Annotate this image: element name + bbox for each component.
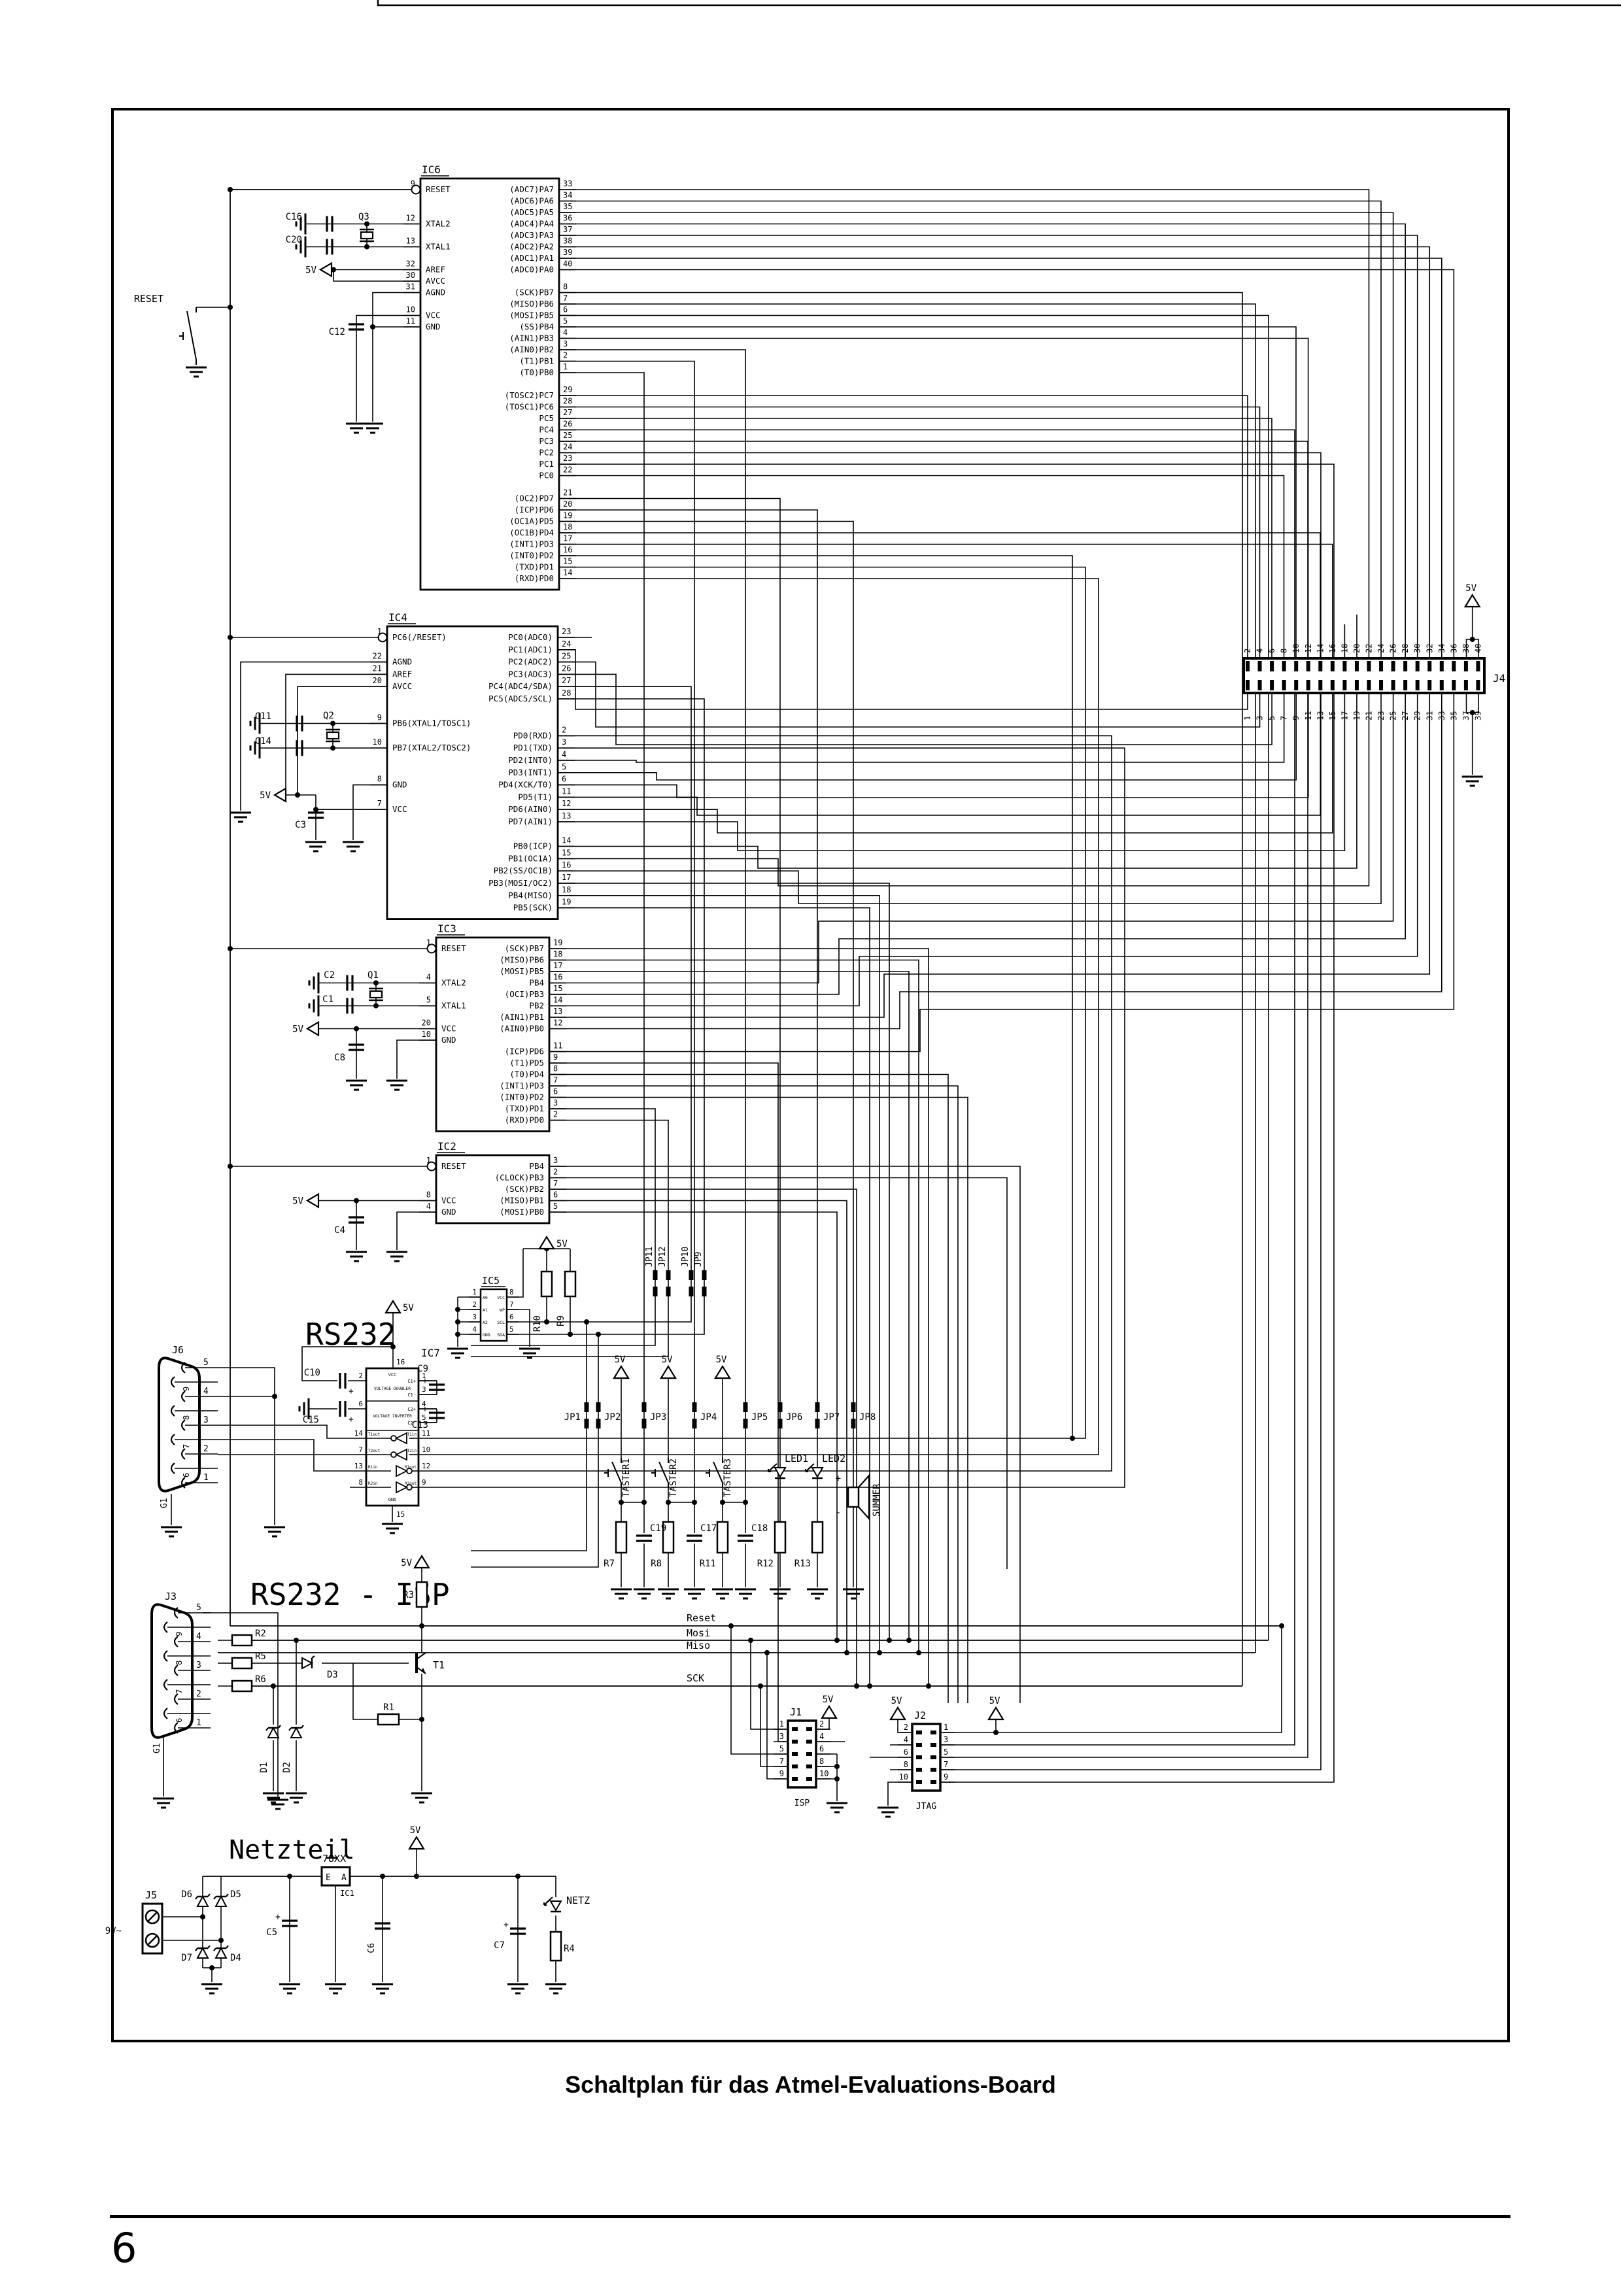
svg-text:+: +	[422, 1404, 428, 1414]
svg-text:(SS)PB4: (SS)PB4	[519, 322, 554, 331]
svg-text:23: 23	[562, 627, 571, 636]
svg-text:9: 9	[411, 179, 415, 188]
svg-text:17: 17	[562, 873, 571, 882]
svg-text:17: 17	[553, 961, 562, 970]
svg-text:31: 31	[406, 282, 415, 292]
svg-text:5V: 5V	[615, 1355, 626, 1365]
svg-text:20: 20	[1352, 644, 1361, 653]
svg-text:AREF: AREF	[392, 669, 412, 679]
svg-text:G1: G1	[160, 1498, 169, 1508]
svg-text:38: 38	[563, 237, 572, 246]
svg-text:9V~: 9V~	[105, 1926, 122, 1936]
svg-text:31: 31	[1425, 711, 1434, 720]
svg-text:JP8: JP8	[859, 1412, 876, 1423]
svg-text:GND: GND	[388, 1497, 397, 1502]
svg-text:XTAL1: XTAL1	[426, 242, 451, 252]
svg-text:18: 18	[562, 885, 571, 894]
svg-text:RESET: RESET	[441, 1161, 466, 1171]
svg-text:C17: C17	[700, 1523, 717, 1534]
svg-text:15: 15	[563, 557, 572, 566]
svg-text:16: 16	[563, 545, 572, 554]
svg-text:C1-: C1-	[407, 1393, 416, 1398]
svg-text:24: 24	[562, 639, 571, 649]
svg-text:R6: R6	[255, 1674, 266, 1685]
svg-text:30: 30	[406, 271, 415, 280]
svg-text:21: 21	[1365, 711, 1374, 720]
svg-text:+: +	[349, 1415, 354, 1425]
svg-text:7: 7	[509, 1300, 514, 1309]
svg-text:IC7: IC7	[421, 1347, 440, 1359]
svg-text:39: 39	[563, 248, 572, 257]
svg-text:4: 4	[562, 750, 566, 759]
svg-text:C18: C18	[751, 1523, 768, 1534]
svg-text:4: 4	[426, 973, 431, 982]
svg-text:5V: 5V	[891, 1696, 902, 1706]
svg-text:GND: GND	[426, 322, 441, 331]
svg-text:J4: J4	[1493, 672, 1505, 684]
svg-text:18: 18	[553, 950, 562, 959]
svg-text:35: 35	[563, 202, 572, 211]
svg-text:R3: R3	[403, 1590, 414, 1600]
svg-text:(SCK)PB7: (SCK)PB7	[515, 288, 554, 297]
svg-text:3: 3	[1255, 716, 1265, 720]
svg-text:IC2: IC2	[437, 1140, 456, 1153]
svg-text:30: 30	[1413, 644, 1422, 653]
svg-text:16: 16	[553, 973, 562, 982]
j3-connector: J3594837261G1	[152, 1591, 211, 1753]
svg-text:GND: GND	[441, 1207, 456, 1217]
svg-text:12: 12	[562, 799, 571, 808]
svg-text:J1: J1	[790, 1706, 802, 1718]
svg-text:PD6(AIN0): PD6(AIN0)	[508, 804, 553, 814]
svg-text:(ICP)PD6: (ICP)PD6	[515, 505, 554, 515]
svg-text:J5: J5	[145, 1889, 157, 1901]
svg-text:37: 37	[1461, 711, 1471, 720]
ic5-block: IC51A02A13A24GND8VCC7WP6SCL5SDA	[469, 1275, 519, 1341]
svg-text:IC1: IC1	[340, 1889, 354, 1898]
svg-text:PB5(SCK): PB5(SCK)	[513, 903, 553, 913]
svg-text:PD2(INT0): PD2(INT0)	[508, 755, 553, 765]
svg-text:GND: GND	[441, 1035, 456, 1045]
svg-text:AGND: AGND	[392, 657, 412, 667]
svg-text:(ADC7)PA7: (ADC7)PA7	[509, 184, 554, 194]
svg-text:SCK: SCK	[687, 1672, 704, 1684]
svg-text:40: 40	[1473, 644, 1482, 653]
svg-text:C6: C6	[367, 1943, 377, 1953]
svg-text:10: 10	[819, 1769, 828, 1778]
svg-text:D7: D7	[181, 1953, 192, 1963]
svg-text:1: 1	[563, 362, 568, 371]
svg-text:A2: A2	[483, 1320, 488, 1325]
svg-text:C9: C9	[417, 1364, 428, 1374]
svg-text:15: 15	[1328, 711, 1337, 720]
svg-text:14: 14	[354, 1429, 364, 1438]
svg-text:23: 23	[1376, 711, 1386, 720]
svg-text:PB4: PB4	[529, 978, 544, 988]
svg-text:1: 1	[426, 938, 431, 947]
svg-text:5: 5	[1267, 716, 1276, 720]
svg-text:1: 1	[779, 1719, 784, 1729]
svg-text:26: 26	[1389, 644, 1398, 653]
svg-text:17: 17	[1340, 711, 1349, 720]
svg-text:8: 8	[377, 775, 382, 784]
svg-text:AVCC: AVCC	[392, 681, 412, 691]
svg-text:6: 6	[1267, 649, 1276, 653]
svg-text:(TOSC1)PC6: (TOSC1)PC6	[505, 402, 554, 412]
svg-text:VCC: VCC	[388, 1372, 397, 1377]
svg-text:5V: 5V	[716, 1355, 727, 1365]
schematic-svg: IC69RESET12XTAL213XTAL132AREF30AVCC31AGN…	[0, 0, 1621, 2293]
svg-text:LED1: LED1	[785, 1453, 808, 1464]
svg-text:19: 19	[1352, 711, 1361, 720]
svg-text:PC5(ADC5/SCL): PC5(ADC5/SCL)	[488, 694, 553, 703]
svg-text:24: 24	[563, 443, 572, 452]
figure-caption: Schaltplan für das Atmel-Evaluations-Boa…	[0, 2071, 1621, 2099]
svg-text:Reset: Reset	[687, 1612, 716, 1624]
svg-text:2: 2	[553, 1168, 558, 1177]
svg-text:C2+: C2+	[407, 1407, 416, 1412]
svg-text:R1: R1	[383, 1702, 394, 1713]
j6-connector: J6594837261G1	[159, 1344, 218, 1508]
svg-text:PB2: PB2	[529, 1001, 544, 1011]
svg-text:PB7(XTAL2/TOSC2): PB7(XTAL2/TOSC2)	[392, 743, 471, 752]
svg-text:11: 11	[1304, 711, 1313, 720]
svg-text:PB4(MISO): PB4(MISO)	[508, 890, 553, 900]
svg-text:3: 3	[779, 1732, 784, 1741]
svg-text:PD1(TXD): PD1(TXD)	[513, 743, 553, 752]
svg-text:2: 2	[562, 725, 566, 734]
svg-text:(OC2)PD7: (OC2)PD7	[515, 494, 554, 503]
svg-text:C8: C8	[334, 1053, 345, 1063]
svg-text:1: 1	[944, 1723, 948, 1732]
svg-text:(AIN1)PB1: (AIN1)PB1	[500, 1012, 544, 1022]
svg-text:D1: D1	[259, 1762, 269, 1773]
svg-text:5V: 5V	[662, 1355, 673, 1365]
svg-text:JP6: JP6	[786, 1412, 802, 1423]
svg-text:7: 7	[1280, 716, 1289, 720]
svg-text:4: 4	[203, 1387, 209, 1396]
svg-text:34: 34	[1437, 644, 1446, 653]
svg-text:RESET: RESET	[134, 293, 163, 305]
svg-text:VCC: VCC	[497, 1295, 505, 1300]
svg-text:25: 25	[563, 431, 572, 440]
svg-text:12: 12	[422, 1462, 430, 1470]
svg-text:1: 1	[203, 1473, 209, 1483]
svg-text:7: 7	[358, 1445, 363, 1454]
svg-text:PB0(ICP): PB0(ICP)	[513, 841, 553, 851]
svg-text:5V: 5V	[410, 1825, 421, 1836]
schematic-canvas: IC69RESET12XTAL213XTAL132AREF30AVCC31AGN…	[0, 0, 1621, 2296]
svg-text:(RXD)PD0: (RXD)PD0	[505, 1115, 544, 1125]
svg-text:3: 3	[944, 1735, 948, 1744]
svg-text:T1: T1	[433, 1659, 445, 1671]
svg-text:(RXD)PD0: (RXD)PD0	[515, 573, 554, 583]
svg-text:5V: 5V	[292, 1024, 303, 1035]
svg-text:JP1: JP1	[564, 1412, 581, 1423]
svg-text:Q2: Q2	[323, 711, 334, 721]
svg-text:RESET: RESET	[426, 184, 451, 194]
svg-text:3: 3	[562, 737, 566, 747]
ic4-block: IC41PC6(/RESET)22AGND21AREF20AVCC9PB6(XT…	[370, 611, 575, 919]
svg-text:6: 6	[175, 1718, 184, 1723]
svg-text:JP9: JP9	[694, 1252, 704, 1267]
svg-text:21: 21	[563, 488, 572, 498]
svg-text:40: 40	[563, 260, 572, 269]
svg-text:PD0(RXD): PD0(RXD)	[513, 730, 553, 740]
svg-text:(ADC0)PA0: (ADC0)PA0	[509, 265, 554, 275]
svg-text:JP2: JP2	[604, 1412, 621, 1423]
svg-text:AGND: AGND	[426, 288, 445, 297]
svg-text:VCC: VCC	[441, 1196, 456, 1206]
svg-text:9: 9	[175, 1632, 184, 1636]
svg-text:ISP: ISP	[794, 1798, 810, 1808]
svg-text:VCC: VCC	[426, 311, 441, 320]
svg-text:5V: 5V	[401, 1558, 412, 1568]
svg-text:E: E	[326, 1873, 331, 1883]
svg-text:C5: C5	[266, 1927, 277, 1938]
ic2-block: IC21RESET8VCC4GND3PB42(CLOCK)PB37(SCK)PB…	[419, 1140, 566, 1223]
svg-text:7: 7	[779, 1757, 784, 1766]
svg-text:GND: GND	[483, 1332, 490, 1338]
svg-text:(MOSI)PB5: (MOSI)PB5	[509, 311, 554, 320]
svg-text:(OC1A)PD5: (OC1A)PD5	[509, 516, 554, 526]
svg-text:3: 3	[203, 1415, 209, 1425]
svg-text:5V: 5V	[1465, 583, 1476, 594]
svg-text:5V: 5V	[989, 1696, 1000, 1706]
svg-text:36: 36	[563, 214, 572, 223]
svg-text:+: +	[503, 1920, 509, 1930]
svg-text:(ICP)PD6: (ICP)PD6	[505, 1047, 544, 1056]
svg-text:14: 14	[1316, 644, 1325, 653]
svg-text:G1: G1	[152, 1743, 162, 1753]
svg-text:PB4: PB4	[529, 1161, 544, 1171]
svg-text:4: 4	[1255, 649, 1265, 653]
svg-text:2: 2	[196, 1689, 201, 1699]
svg-text:13: 13	[354, 1462, 363, 1470]
svg-text:+: +	[836, 1474, 841, 1484]
svg-text:1: 1	[377, 627, 382, 636]
svg-text:R7: R7	[604, 1559, 615, 1569]
svg-text:(AIN0)PB0: (AIN0)PB0	[500, 1024, 544, 1034]
svg-text:C3: C3	[295, 820, 306, 830]
ground-symbols	[153, 214, 1483, 1994]
svg-text:(ADC1)PA1: (ADC1)PA1	[509, 253, 554, 263]
svg-text:JP7: JP7	[823, 1412, 840, 1423]
svg-text:3: 3	[472, 1313, 477, 1321]
svg-text:78XX: 78XX	[322, 1853, 346, 1865]
svg-text:17: 17	[563, 534, 572, 543]
svg-text:3: 3	[553, 1098, 558, 1107]
svg-text:9: 9	[779, 1769, 784, 1778]
svg-text:1: 1	[196, 1718, 201, 1728]
svg-text:4: 4	[196, 1632, 201, 1642]
svg-text:18: 18	[563, 522, 572, 532]
j1-header: J112345678910ISP	[774, 1706, 830, 1808]
svg-text:C10: C10	[304, 1368, 320, 1378]
svg-text:6: 6	[563, 305, 568, 314]
svg-text:15: 15	[396, 1510, 405, 1519]
svg-text:PC3: PC3	[539, 436, 554, 446]
svg-text:PD3(INT1): PD3(INT1)	[508, 768, 553, 777]
svg-text:D2: D2	[282, 1762, 292, 1773]
svg-text:A0: A0	[483, 1295, 488, 1300]
svg-text:R2in: R2in	[368, 1481, 378, 1486]
svg-text:C16: C16	[286, 212, 302, 222]
svg-text:4: 4	[563, 328, 568, 337]
svg-text:PB3(MOSI/OC2): PB3(MOSI/OC2)	[488, 878, 553, 888]
svg-text:SUMMER: SUMMER	[872, 1483, 882, 1517]
svg-text:PC4(ADC4/SDA): PC4(ADC4/SDA)	[488, 681, 553, 691]
svg-text:(CLOCK)PB3: (CLOCK)PB3	[495, 1173, 544, 1183]
svg-text:PB2(SS/OC1B): PB2(SS/OC1B)	[494, 866, 553, 875]
svg-text:R10: R10	[532, 1315, 543, 1332]
svg-text:19: 19	[563, 511, 572, 520]
svg-text:VOLTAGE INVERTER: VOLTAGE INVERTER	[373, 1414, 412, 1419]
svg-text:3: 3	[553, 1156, 558, 1165]
svg-text:(INT0)PD2: (INT0)PD2	[500, 1092, 544, 1102]
svg-text:19: 19	[562, 898, 571, 907]
svg-text:PD7(AIN1): PD7(AIN1)	[508, 817, 553, 826]
svg-text:9: 9	[422, 1478, 426, 1487]
svg-text:8: 8	[175, 1661, 184, 1665]
svg-text:27: 27	[1401, 711, 1410, 720]
svg-text:+: +	[349, 1387, 354, 1396]
svg-text:XTAL2: XTAL2	[441, 978, 466, 988]
svg-text:1: 1	[1243, 716, 1252, 720]
svg-text:C4: C4	[334, 1225, 345, 1236]
svg-text:9: 9	[182, 1387, 191, 1391]
svg-text:PC6(/RESET): PC6(/RESET)	[392, 632, 447, 642]
footer-rule	[110, 2215, 1510, 2218]
svg-text:IC5: IC5	[482, 1275, 500, 1287]
svg-text:PD4(XCK/T0): PD4(XCK/T0)	[498, 780, 553, 790]
svg-text:5: 5	[779, 1744, 784, 1753]
svg-text:2: 2	[904, 1723, 908, 1732]
svg-text:9: 9	[944, 1772, 948, 1781]
svg-text:C14: C14	[255, 736, 271, 747]
svg-text:28: 28	[1401, 644, 1410, 653]
svg-text:(SCK)PB7: (SCK)PB7	[505, 943, 544, 953]
svg-text:PC1(ADC1): PC1(ADC1)	[508, 645, 553, 654]
svg-text:R11: R11	[700, 1559, 716, 1569]
svg-text:SDA: SDA	[497, 1332, 505, 1338]
svg-text:PC1: PC1	[539, 459, 554, 469]
svg-text:5V: 5V	[556, 1239, 568, 1249]
svg-text:XTAL2: XTAL2	[426, 219, 451, 229]
svg-text:15: 15	[553, 984, 562, 993]
svg-text:(AIN1)PB3: (AIN1)PB3	[509, 333, 554, 343]
svg-text:6: 6	[553, 1190, 558, 1200]
svg-text:25: 25	[562, 652, 571, 661]
jumpers: JP1JP2JP3JP4JP5JP6JP7JP8JP11JP12JP10JP9	[564, 1247, 876, 1428]
svg-text:C1: C1	[322, 994, 333, 1005]
svg-text:20: 20	[422, 1019, 431, 1028]
svg-text:2: 2	[472, 1300, 477, 1309]
svg-text:R13: R13	[794, 1559, 811, 1569]
svg-text:15: 15	[562, 848, 571, 857]
svg-text:19: 19	[553, 938, 562, 947]
svg-text:25: 25	[1389, 711, 1398, 720]
svg-text:10: 10	[422, 1030, 431, 1039]
svg-text:6: 6	[509, 1313, 514, 1321]
svg-text:TASTER3: TASTER3	[723, 1459, 733, 1497]
svg-text:R4: R4	[564, 1944, 575, 1954]
svg-text:36: 36	[1449, 644, 1458, 653]
svg-text:7: 7	[182, 1444, 191, 1449]
svg-text:D6: D6	[181, 1889, 192, 1900]
svg-text:(T0)PB0: (T0)PB0	[519, 367, 554, 377]
svg-text:(T0)PD4: (T0)PD4	[509, 1070, 544, 1079]
svg-text:JP11: JP11	[645, 1247, 655, 1267]
svg-text:Q3: Q3	[358, 212, 369, 222]
svg-text:PC2(ADC2): PC2(ADC2)	[508, 657, 553, 667]
svg-text:SCL: SCL	[497, 1320, 505, 1325]
svg-text:12: 12	[406, 214, 415, 223]
svg-text:JP10: JP10	[681, 1247, 691, 1267]
svg-text:5V: 5V	[305, 265, 316, 276]
svg-text:(ADC5)PA5: (ADC5)PA5	[509, 207, 554, 217]
svg-text:6: 6	[562, 775, 566, 784]
svg-text:3: 3	[422, 1385, 426, 1394]
svg-text:(INT0)PD2: (INT0)PD2	[509, 550, 554, 560]
svg-text:D3: D3	[327, 1670, 338, 1680]
svg-text:3: 3	[563, 339, 568, 348]
svg-text:D5: D5	[230, 1889, 241, 1900]
svg-text:2: 2	[203, 1444, 209, 1454]
svg-text:24: 24	[1376, 644, 1386, 653]
svg-text:6: 6	[553, 1087, 558, 1096]
svg-text:34: 34	[563, 191, 572, 200]
svg-text:J6: J6	[172, 1344, 184, 1356]
svg-text:J3: J3	[165, 1591, 177, 1602]
svg-text:1: 1	[426, 1156, 431, 1165]
svg-text:13: 13	[406, 237, 415, 246]
svg-text:PC0(ADC0): PC0(ADC0)	[508, 632, 553, 642]
svg-text:8: 8	[182, 1415, 191, 1420]
svg-text:TASTER1: TASTER1	[621, 1459, 632, 1497]
svg-text:11: 11	[553, 1041, 562, 1051]
svg-text:7: 7	[944, 1760, 948, 1769]
svg-text:(ADC4)PA4: (ADC4)PA4	[509, 219, 554, 229]
svg-text:Q1: Q1	[367, 970, 379, 981]
svg-text:(SCK)PB2: (SCK)PB2	[505, 1184, 544, 1194]
svg-text:IC6: IC6	[422, 163, 441, 176]
svg-text:8: 8	[358, 1478, 363, 1487]
svg-text:R9: R9	[556, 1315, 566, 1326]
svg-text:C12: C12	[329, 327, 345, 337]
svg-text:R8: R8	[651, 1559, 662, 1569]
svg-text:13: 13	[553, 1007, 562, 1016]
svg-text:8: 8	[819, 1757, 824, 1766]
svg-text:9: 9	[553, 1053, 558, 1062]
svg-text:3: 3	[196, 1661, 201, 1670]
svg-text:PB1(OC1A): PB1(OC1A)	[508, 853, 553, 863]
svg-text:8: 8	[426, 1190, 431, 1200]
svg-text:13: 13	[562, 811, 571, 820]
svg-text:7: 7	[553, 1179, 558, 1188]
svg-text:4: 4	[472, 1325, 477, 1334]
svg-text:5: 5	[509, 1325, 514, 1334]
svg-text:22: 22	[563, 465, 572, 475]
svg-text:18: 18	[1340, 644, 1349, 653]
svg-text:+: +	[275, 1912, 281, 1922]
svg-text:R12: R12	[757, 1559, 774, 1569]
svg-text:R2: R2	[255, 1629, 266, 1639]
svg-text:32: 32	[406, 260, 415, 269]
svg-text:16: 16	[396, 1358, 405, 1366]
svg-text:NETZ: NETZ	[566, 1895, 590, 1906]
svg-text:5: 5	[563, 316, 568, 326]
